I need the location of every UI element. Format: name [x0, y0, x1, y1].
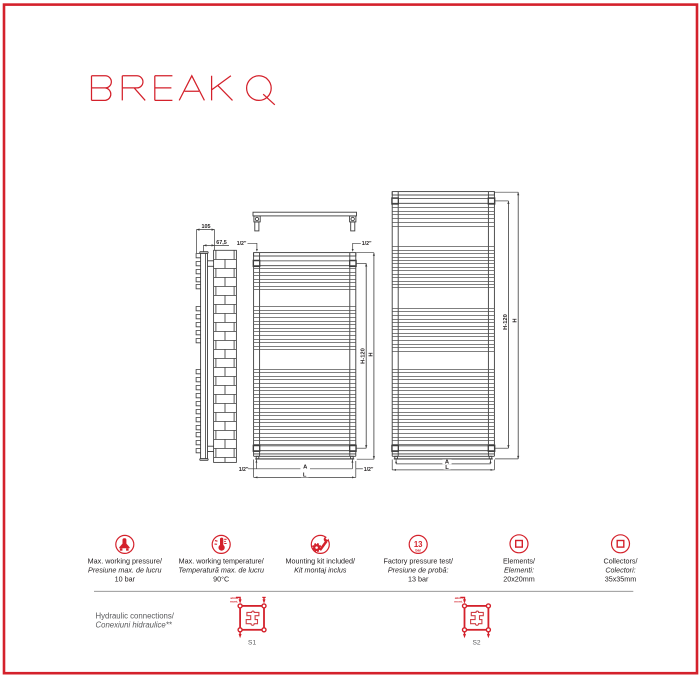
svg-text:Hydraulic connections/: Hydraulic connections/ — [96, 611, 175, 620]
svg-text:1/2”: 1/2” — [362, 241, 372, 247]
svg-text:1/2”: 1/2” — [237, 241, 247, 247]
svg-text:Max. working pressure/: Max. working pressure/ — [88, 556, 162, 565]
svg-text:H-120: H-120 — [503, 314, 509, 330]
svg-text:L: L — [303, 473, 307, 479]
svg-text:1/2”: 1/2” — [364, 467, 374, 473]
svg-text:L: L — [445, 465, 449, 471]
svg-text:Kit montaj inclus: Kit montaj inclus — [294, 565, 347, 574]
svg-text:13 bar: 13 bar — [408, 574, 429, 583]
svg-text:mont.: mont. — [230, 599, 239, 603]
svg-text:Conexiuni hidraulice**: Conexiuni hidraulice** — [96, 620, 173, 629]
svg-text:Factory pressure test/: Factory pressure test/ — [383, 556, 453, 565]
svg-text:Colectori:: Colectori: — [605, 565, 635, 574]
svg-text:H: H — [368, 352, 374, 356]
svg-text:H: H — [513, 318, 519, 322]
svg-text:Temperatură max. de lucru: Temperatură max. de lucru — [178, 565, 264, 574]
svg-text:Max. working temperature/: Max. working temperature/ — [179, 556, 264, 565]
svg-text:bar: bar — [415, 549, 421, 553]
svg-text:105: 105 — [202, 224, 211, 230]
svg-text:Presiune max. de lucru: Presiune max. de lucru — [88, 565, 162, 574]
svg-text:Presiune de probă:: Presiune de probă: — [388, 565, 449, 574]
svg-text:Elements/: Elements/ — [503, 556, 535, 565]
svg-text:90°C: 90°C — [213, 574, 229, 583]
svg-text:35x35mm: 35x35mm — [605, 574, 637, 583]
svg-text:Mounting kit included/: Mounting kit included/ — [286, 556, 356, 565]
svg-text:Elementi:: Elementi: — [504, 565, 534, 574]
svg-text:mont.: mont. — [454, 599, 463, 603]
svg-text:20x20mm: 20x20mm — [503, 574, 535, 583]
svg-text:1/2”: 1/2” — [239, 467, 249, 473]
svg-text:H-120: H-120 — [361, 348, 367, 364]
svg-text:Collectors/: Collectors/ — [604, 556, 638, 565]
svg-text:13: 13 — [414, 540, 423, 549]
svg-text:10 bar: 10 bar — [115, 574, 136, 583]
svg-text:S2: S2 — [472, 640, 480, 647]
svg-text:S1: S1 — [248, 640, 256, 647]
